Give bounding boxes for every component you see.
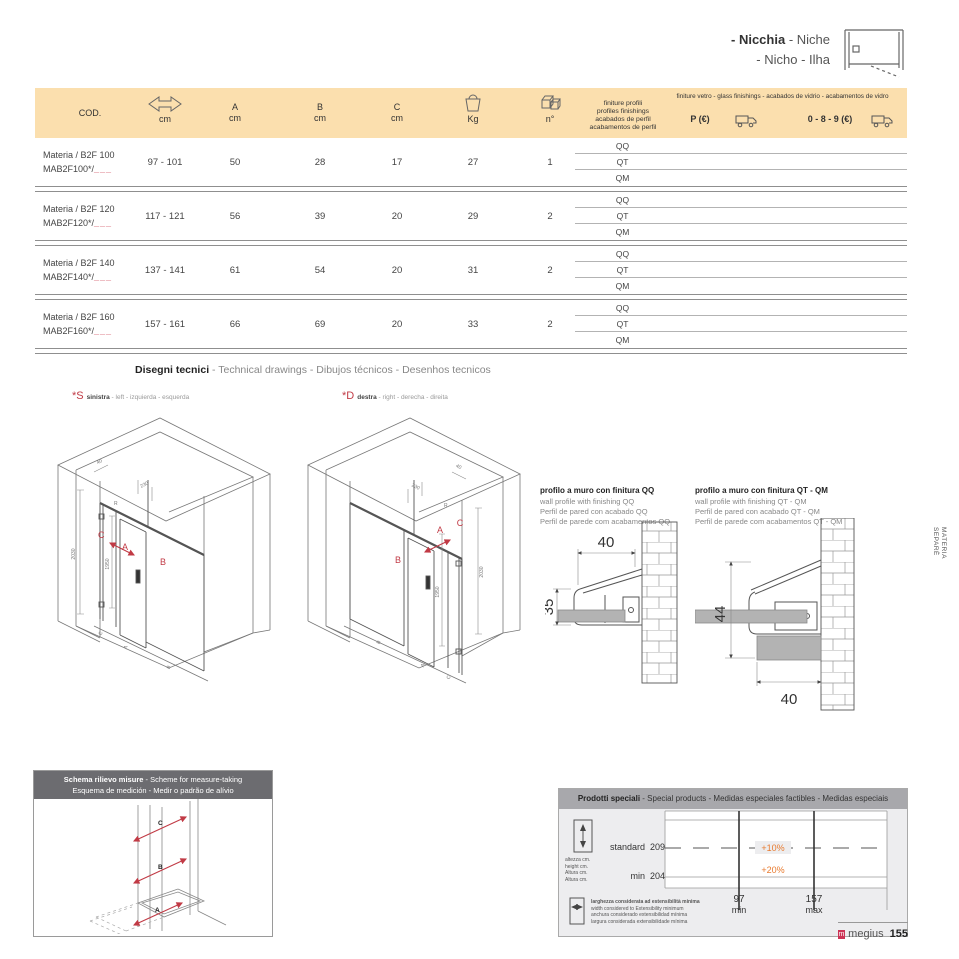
niche-title-line2: - Nicho - Ilha bbox=[660, 50, 830, 70]
finish-divider bbox=[575, 261, 907, 262]
height-caption: altezza cm. height cm. Altura cm. Altura… bbox=[565, 857, 609, 883]
finish-divider bbox=[575, 331, 907, 332]
base-c: C bbox=[98, 630, 105, 636]
width-caption-pt: largura considerada extensibilidade míni… bbox=[591, 919, 726, 926]
dim-230: 230 bbox=[410, 483, 420, 492]
finish-qt: QT bbox=[585, 316, 660, 332]
finish-qq: QQ bbox=[585, 192, 660, 208]
tech-title-bold: Disegni tecnici bbox=[135, 364, 209, 376]
tech-title-rest: - Technical drawings - Dibujos técnicos … bbox=[209, 364, 491, 376]
profile-qq-en: wall profile with finishing QQ bbox=[540, 497, 700, 507]
product-table: COD. cm Acm Bcm Ccm Kg bbox=[35, 88, 907, 354]
dim-a: 66 bbox=[205, 300, 265, 348]
weight-kg: 27 bbox=[443, 138, 503, 186]
dim-c: 20 bbox=[367, 300, 427, 348]
code-blanks: ___ bbox=[94, 326, 112, 336]
max-col-value: 157 bbox=[806, 894, 823, 905]
left-rest: - left - izquierda - esquerda bbox=[110, 394, 189, 401]
left-word: sinistra bbox=[87, 394, 110, 401]
profile-qtqm-title: profilo a muro con finitura QT - QM bbox=[695, 486, 905, 497]
profile-qtqm-en: wall profile with finishing QT - QM bbox=[695, 497, 905, 507]
min-col-label: min bbox=[732, 905, 747, 915]
finish-divider bbox=[575, 277, 907, 278]
right-rest: - right - derecha - direita bbox=[377, 394, 448, 401]
side-collection-label: MATERIA SEPARÈ bbox=[930, 527, 947, 559]
panel-b-label: B bbox=[160, 557, 166, 567]
weight-kg: 33 bbox=[443, 300, 503, 348]
col-kg: Kg bbox=[443, 92, 503, 125]
panel-b-label: B bbox=[395, 555, 401, 565]
finish-divider bbox=[575, 207, 907, 208]
product-name: Materia / B2F 100 bbox=[43, 150, 115, 160]
finish-divider bbox=[575, 169, 907, 170]
base-b: B bbox=[166, 664, 173, 670]
col-p-eur: P (€) bbox=[660, 114, 740, 125]
width-range: 137 - 141 bbox=[135, 246, 195, 294]
page-footer: m megius 155 bbox=[838, 922, 908, 940]
order-code: MAB2F160*/ bbox=[43, 326, 94, 336]
min-col-value: 97 bbox=[733, 894, 745, 905]
col-b: Bcm bbox=[290, 102, 350, 125]
right-drawing-caption: *Ddestra - right - derecha - direita bbox=[342, 390, 448, 402]
dim-b: 39 bbox=[290, 192, 350, 240]
weight-kg: 31 bbox=[443, 246, 503, 294]
qq-dim-35: 35 bbox=[545, 599, 557, 616]
col-b-label: B bbox=[317, 102, 323, 112]
packages-icon bbox=[539, 92, 561, 114]
dim-b: 54 bbox=[290, 246, 350, 294]
finish-divider bbox=[575, 153, 907, 154]
finish-divider bbox=[575, 315, 907, 316]
width-caption: larghezza considerata ad estensibilità m… bbox=[591, 899, 726, 925]
code-blanks: ___ bbox=[94, 164, 112, 174]
height-arrow-icon bbox=[573, 819, 593, 853]
s-drawing-svg: 2030 1950 40 230 R C A B C A B bbox=[42, 408, 282, 688]
col-kg-label: Kg bbox=[443, 114, 503, 125]
col-c-unit: cm bbox=[391, 113, 403, 123]
dim-1950: 1950 bbox=[435, 586, 441, 597]
profile-qtqm-svg: 44 40 bbox=[695, 518, 905, 713]
niche-plan-icon bbox=[841, 26, 907, 78]
left-drawing-caption: *Ssinistra - left - izquierda - esquerda bbox=[72, 390, 189, 402]
profile-qtqm-es: Perfil de pared con acabado QT - QM bbox=[695, 507, 905, 517]
measure-scheme-svg: C B A bbox=[34, 799, 270, 934]
measure-label-a: A bbox=[155, 907, 160, 914]
dim-b: 69 bbox=[290, 300, 350, 348]
profile-qq-es: Perfil de pared con acabado QQ bbox=[540, 507, 700, 517]
measure-scheme-header: Schema rilievo misure - Scheme for measu… bbox=[34, 771, 272, 799]
order-code: MAB2F140*/ bbox=[43, 272, 94, 282]
product-name: Materia / B2F 160 bbox=[43, 312, 115, 322]
right-tag: *D bbox=[342, 390, 354, 402]
col-cod: COD. bbox=[45, 108, 135, 119]
standard-value: 209 bbox=[647, 842, 665, 852]
page-number: 155 bbox=[890, 928, 908, 940]
table-row: Materia / B2F 120MAB2F120*/___ 117 - 121… bbox=[35, 192, 907, 240]
finish-qm: QM bbox=[585, 224, 660, 240]
finish-qm: QM bbox=[585, 278, 660, 294]
width-range: 117 - 121 bbox=[135, 192, 195, 240]
dim-40: 40 bbox=[455, 463, 463, 471]
code-blanks: ___ bbox=[94, 218, 112, 228]
width-arrow-icon bbox=[569, 897, 585, 925]
height-caption-pt: Altura cm. bbox=[565, 877, 609, 884]
dim-2030: 2030 bbox=[479, 566, 485, 577]
weight-icon bbox=[462, 92, 484, 114]
weight-kg: 29 bbox=[443, 192, 503, 240]
dim-c: 17 bbox=[367, 138, 427, 186]
finish-qq: QQ bbox=[585, 138, 660, 154]
col-n-label: n° bbox=[520, 114, 580, 125]
dim-c: 20 bbox=[367, 192, 427, 240]
width-range: 157 - 161 bbox=[135, 300, 195, 348]
row-separator bbox=[35, 348, 907, 354]
dim-2030: 2030 bbox=[71, 548, 77, 559]
niche-title: - Nicchia - Niche - Nicho - Ilha bbox=[660, 30, 830, 69]
dim-a: 56 bbox=[205, 192, 265, 240]
col-profiles-l2: profiles finishings bbox=[573, 108, 673, 116]
package-count: 2 bbox=[520, 246, 580, 294]
special-products-box: Prodotti speciali - Special products - M… bbox=[558, 788, 908, 937]
measure-scheme-box: Schema rilievo misure - Scheme for measu… bbox=[33, 770, 273, 937]
standard-label: standard bbox=[607, 842, 645, 852]
table-row: Materia / B2F 100MAB2F100*/___ 97 - 101 … bbox=[35, 138, 907, 186]
finish-divider bbox=[575, 223, 907, 224]
right-word: destra bbox=[357, 394, 377, 401]
min-label: min bbox=[607, 871, 645, 881]
qq-dim-40: 40 bbox=[598, 534, 615, 551]
package-count: 2 bbox=[520, 192, 580, 240]
col-range: cm bbox=[130, 94, 200, 125]
order-code: MAB2F120*/ bbox=[43, 218, 94, 228]
truck-icon bbox=[871, 114, 893, 128]
product-name: Materia / B2F 120 bbox=[43, 204, 115, 214]
qtqm-dim-40: 40 bbox=[781, 691, 798, 708]
col-b-unit: cm bbox=[314, 113, 326, 123]
col-profiles-l1: finiture profili bbox=[573, 100, 673, 108]
finish-qm: QM bbox=[585, 170, 660, 186]
col-c: Ccm bbox=[367, 102, 427, 125]
dim-r: R bbox=[444, 503, 448, 509]
code-blanks: ___ bbox=[94, 272, 112, 282]
base-b: B bbox=[376, 639, 383, 645]
dim-r: R bbox=[114, 501, 118, 507]
col-glass-group: finiture vetro - glass finishings - acab… bbox=[658, 93, 907, 100]
dim-c: 20 bbox=[367, 246, 427, 294]
catalog-page: - Nicchia - Niche - Nicho - Ilha COD. cm… bbox=[0, 0, 959, 959]
col-a-unit: cm bbox=[229, 113, 241, 123]
product-name: Materia / B2F 140 bbox=[43, 258, 115, 268]
megius-logo: m bbox=[838, 930, 845, 939]
niche-title-line1: - Nicchia - Niche bbox=[660, 30, 830, 50]
side-label-line2: SEPARÈ bbox=[930, 527, 938, 559]
table-row: Materia / B2F 140MAB2F140*/___ 137 - 141… bbox=[35, 246, 907, 294]
finish-qt: QT bbox=[585, 208, 660, 224]
d-drawing-svg: 2030 1950 40 230 R B A C B A C bbox=[292, 408, 532, 688]
table-header: COD. cm Acm Bcm Ccm Kg bbox=[35, 88, 907, 138]
col-c-label: C bbox=[394, 102, 401, 112]
dim-b: 28 bbox=[290, 138, 350, 186]
panel-c-label: C bbox=[98, 530, 105, 540]
order-code: MAB2F100*/ bbox=[43, 164, 94, 174]
col-profiles: finiture profili profiles finishings aca… bbox=[573, 100, 673, 133]
profile-qq-title: profilo a muro con finitura QQ bbox=[540, 486, 700, 497]
dim-40: 40 bbox=[96, 458, 104, 466]
dim-a: 50 bbox=[205, 138, 265, 186]
panel-c-label: C bbox=[457, 518, 464, 528]
col-profiles-l4: acabamentos de perfil bbox=[573, 124, 673, 132]
col-a-label: A bbox=[232, 102, 238, 112]
col-profiles-l3: acabados de perfil bbox=[573, 116, 673, 124]
table-row: Materia / B2F 160MAB2F160*/___ 157 - 161… bbox=[35, 300, 907, 348]
measure-label-b: B bbox=[158, 864, 163, 871]
finish-qq: QQ bbox=[585, 300, 660, 316]
finish-qq: QQ bbox=[585, 246, 660, 262]
dim-1950: 1950 bbox=[105, 558, 111, 569]
dim-a: 61 bbox=[205, 246, 265, 294]
width-range: 97 - 101 bbox=[135, 138, 195, 186]
col-a: Acm bbox=[205, 102, 265, 125]
min-value: 204 bbox=[647, 871, 665, 881]
side-label-line1: MATERIA bbox=[939, 527, 947, 559]
measure-label-c: C bbox=[158, 820, 163, 827]
brand-name: megius bbox=[848, 928, 883, 940]
col-n: n° bbox=[520, 92, 580, 125]
niche-title-it: - Nicchia bbox=[731, 32, 785, 47]
niche-title-en: - Niche bbox=[785, 32, 830, 47]
truck-icon bbox=[735, 114, 757, 128]
finish-qm: QM bbox=[585, 332, 660, 348]
plus20-label: +20% bbox=[761, 865, 784, 875]
max-col-label: max bbox=[805, 905, 823, 915]
panel-a-label: A bbox=[437, 525, 443, 535]
col-range-unit: cm bbox=[130, 114, 200, 125]
finish-qt: QT bbox=[585, 154, 660, 170]
measure-scheme-line1: Schema rilievo misure - Scheme for measu… bbox=[34, 774, 272, 785]
schema-title-bold: Schema rilievo misure bbox=[64, 775, 144, 784]
double-arrow-icon bbox=[147, 94, 183, 114]
profile-qq-svg: 40 35 bbox=[545, 520, 695, 685]
col-089-eur: 0 - 8 - 9 (€) bbox=[790, 114, 870, 125]
plus10-label: +10% bbox=[761, 843, 784, 853]
qtqm-dim-44: 44 bbox=[712, 606, 729, 623]
package-count: 2 bbox=[520, 300, 580, 348]
package-count: 1 bbox=[520, 138, 580, 186]
left-tag: *S bbox=[72, 390, 84, 402]
tech-drawings-title: Disegni tecnici - Technical drawings - D… bbox=[135, 364, 491, 376]
measure-scheme-line2: Esquema de medición - Medir o padrão de … bbox=[34, 785, 272, 796]
finish-qt: QT bbox=[585, 262, 660, 278]
schema-title-rest: - Scheme for measure-taking bbox=[143, 775, 242, 784]
